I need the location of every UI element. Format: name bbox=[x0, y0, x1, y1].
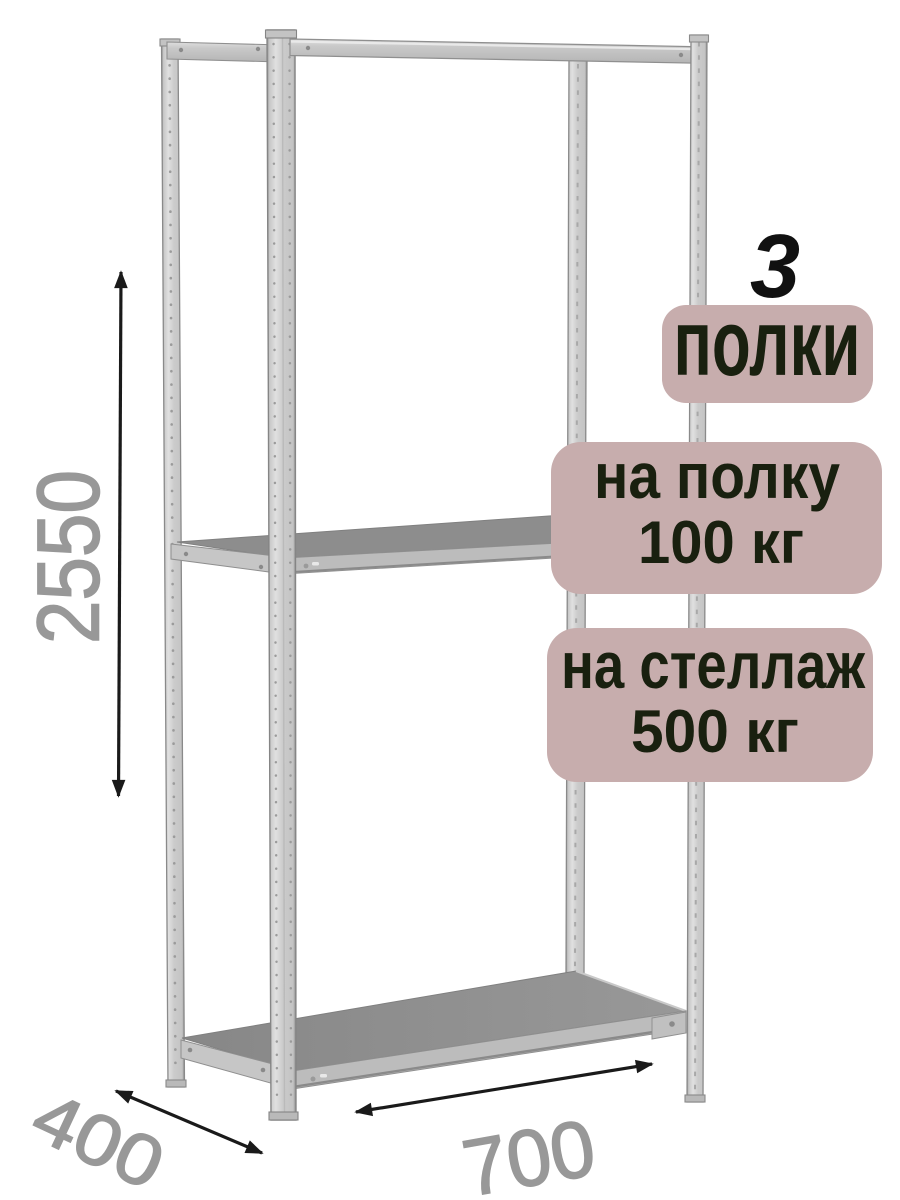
svg-text:2550: 2550 bbox=[19, 470, 118, 644]
svg-text:на стеллаж: на стеллаж bbox=[561, 628, 866, 702]
svg-text:на полку: на полку bbox=[594, 440, 840, 512]
svg-text:100 кг: 100 кг bbox=[638, 509, 804, 576]
svg-text:полки: полки bbox=[674, 290, 861, 395]
svg-text:500 кг: 500 кг bbox=[631, 698, 799, 765]
